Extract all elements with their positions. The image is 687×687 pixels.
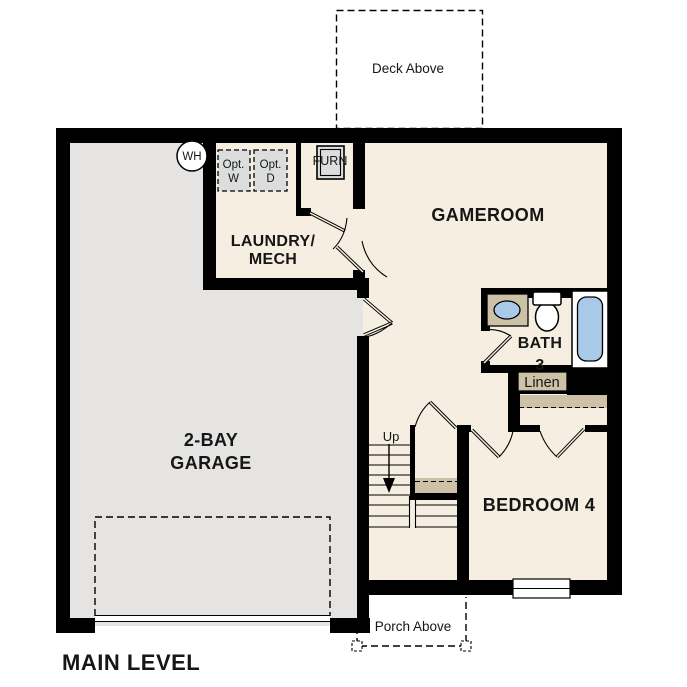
wall-laundry-left [203,143,216,290]
dryer-label-line1: Opt. [260,159,282,171]
wall-gameroom-left [353,270,365,290]
garage-label-line2: GARAGE [170,453,251,473]
bedroom-window [513,579,570,598]
furnace-label: FURN [313,154,348,168]
page-title: MAIN LEVEL [62,650,200,675]
linen-label: Linen [524,375,559,391]
laundry-label-line2: MECH [249,251,297,268]
garage-label-line1: 2-BAY [184,430,238,450]
wall-bottom-garage [56,618,95,633]
stairs-up-label: Up [383,429,400,444]
washer-label-line2: W [228,173,239,185]
wall-stair-closet-left [410,425,415,500]
porch-post [352,641,362,651]
bath-vanity [487,294,528,326]
wall-bottom-bedroom [358,580,513,595]
bedroom4-label: BEDROOM 4 [483,495,596,515]
wall-garage-right [357,336,369,633]
floorplan-page: GAMEROOM LAUNDRY/ MECH 2-BAY GARAGE BATH… [0,0,687,687]
porch-post [461,641,471,651]
porch-label: Porch Above [375,619,452,634]
wall-top [56,128,622,143]
wall-bedroom-top [513,425,540,432]
wall-furnace-closet [296,208,311,216]
deck-label: Deck Above [372,61,444,76]
wall-stair-closet-bottom [410,493,469,500]
sink-icon [494,301,520,319]
wall-gameroom-left [353,143,365,209]
water-heater-label: WH [182,151,201,163]
wall-left [56,128,70,633]
wall-furnace-closet [296,143,301,211]
bath3-label-line2: 3 [535,357,544,374]
laundry-label-line1: LAUNDRY/ [231,233,316,250]
toilet-icon [533,292,561,331]
dryer-label-line2: D [266,173,274,185]
wall-bedroom-top [585,425,622,432]
bedroom-closet-shelf [518,395,613,408]
garage-door [95,615,330,622]
wall-laundry-bottom [203,278,369,290]
washer-label-line1: Opt. [223,159,245,171]
wall-bottom-bedroom [570,580,622,595]
wall-bedroom-left [457,425,469,580]
bath3-label-line1: BATH [518,335,562,352]
wall-linen-right [567,365,622,395]
bathtub-icon [572,291,608,368]
stair-closet-shelf [415,478,457,493]
gameroom-label: GAMEROOM [431,205,544,225]
floorplan-drawing: GAMEROOM LAUNDRY/ MECH 2-BAY GARAGE BATH… [0,0,687,687]
